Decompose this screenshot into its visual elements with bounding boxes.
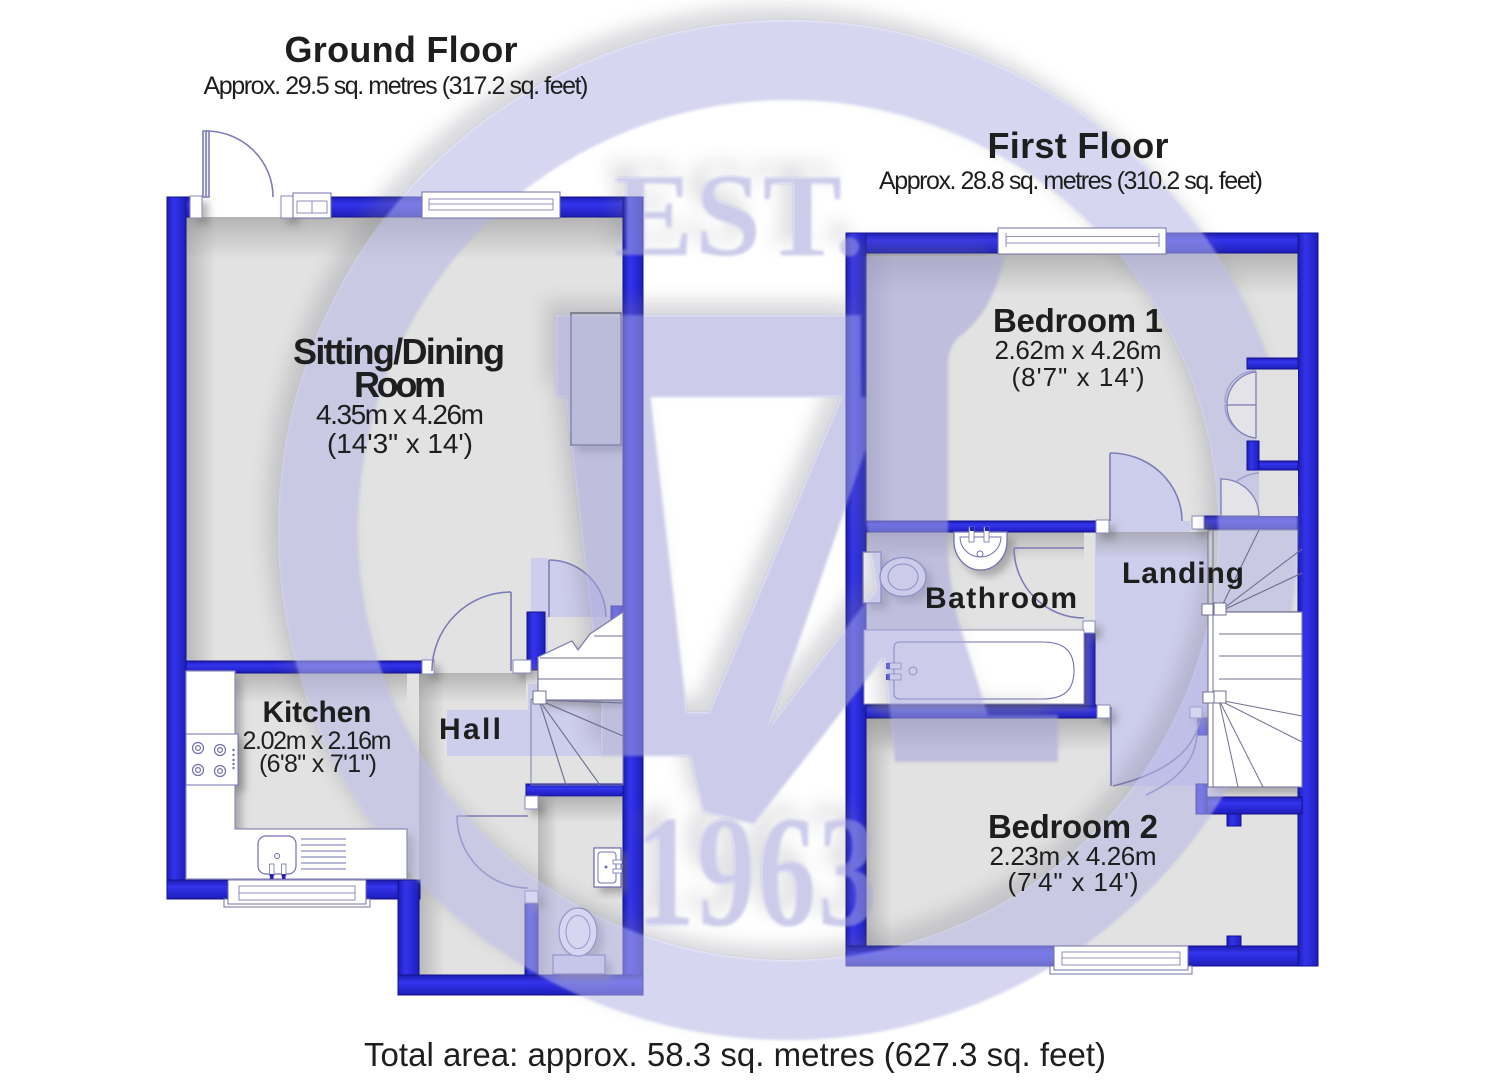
svg-text:First Floor: First Floor [988, 125, 1169, 166]
svg-text:Bedroom 1: Bedroom 1 [993, 302, 1163, 339]
svg-text:Kitchen: Kitchen [263, 696, 372, 729]
svg-text:Ground Floor: Ground Floor [285, 29, 518, 70]
svg-text:2.62m x 4.26m: 2.62m x 4.26m [995, 335, 1162, 365]
svg-text:(14'3" x 14'): (14'3" x 14') [327, 428, 473, 459]
svg-text:Hall: Hall [439, 713, 501, 746]
svg-text:Bathroom: Bathroom [925, 582, 1077, 615]
svg-text:Total area: approx. 58.3 sq. m: Total area: approx. 58.3 sq. metres (627… [364, 1036, 1106, 1073]
svg-text:Landing: Landing [1122, 557, 1244, 590]
svg-text:Approx. 28.8 sq. metres (310.2: Approx. 28.8 sq. metres (310.2 sq. feet) [879, 167, 1263, 195]
svg-text:4.35m x 4.26m: 4.35m x 4.26m [316, 399, 484, 430]
svg-text:Bedroom 2: Bedroom 2 [988, 808, 1158, 845]
svg-text:(7'4" x 14'): (7'4" x 14') [1008, 867, 1139, 897]
svg-text:(8'7" x 14'): (8'7" x 14') [1012, 362, 1145, 392]
svg-text:Approx. 29.5 sq. metres (317.2: Approx. 29.5 sq. metres (317.2 sq. feet) [204, 72, 589, 100]
svg-text:(6'8" x 7'1"): (6'8" x 7'1") [259, 750, 377, 778]
